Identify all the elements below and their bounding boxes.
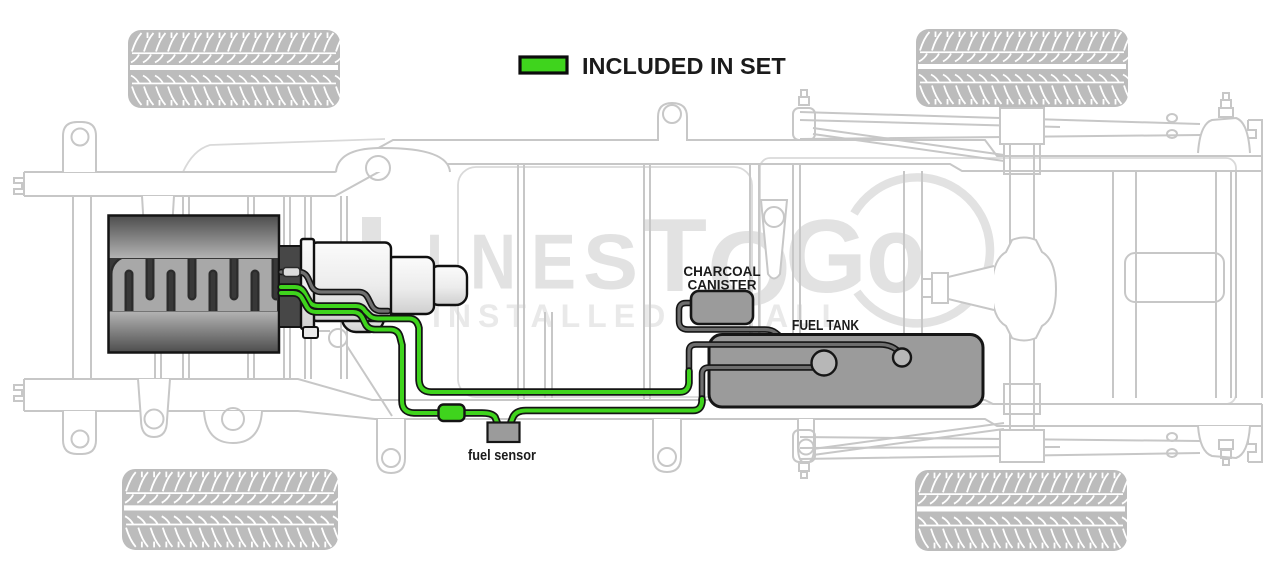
svg-text:N: N xyxy=(470,218,516,306)
svg-text:FUEL TANK: FUEL TANK xyxy=(792,317,859,334)
svg-text:E: E xyxy=(531,218,576,306)
svg-text:fuel sensor: fuel sensor xyxy=(468,448,536,464)
svg-text:INCLUDED IN SET: INCLUDED IN SET xyxy=(582,53,786,79)
svg-text:o: o xyxy=(866,193,926,316)
svg-text:S: S xyxy=(583,218,638,306)
svg-text:CANISTER: CANISTER xyxy=(687,278,756,293)
